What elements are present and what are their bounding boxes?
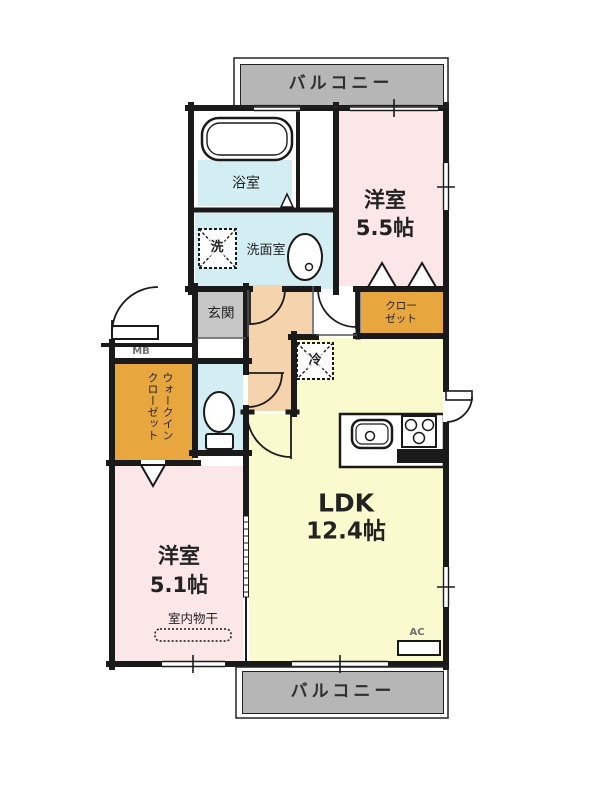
window-bedroom2-bottom bbox=[162, 655, 225, 673]
window-top-1 bbox=[254, 105, 300, 112]
ldk-name: LDK bbox=[318, 487, 374, 518]
window-ldk-right bbox=[437, 567, 455, 607]
washroom-label: 洗面室 bbox=[246, 243, 285, 259]
indoor-drying-icon bbox=[155, 629, 231, 641]
closet-folding-door-icon bbox=[368, 263, 436, 287]
walls-and-fixtures bbox=[0, 0, 607, 800]
washroom-door bbox=[250, 289, 285, 325]
closet-label: クローゼット bbox=[381, 300, 421, 326]
ac-label: AC bbox=[409, 627, 424, 640]
bath-label: 浴室 bbox=[232, 175, 260, 193]
bedroom1-name: 洋室 bbox=[364, 187, 406, 213]
ldk-door bbox=[247, 413, 291, 459]
fridge-label: 冷 bbox=[307, 353, 322, 369]
bathtub-icon bbox=[202, 118, 292, 160]
toilet-door bbox=[248, 373, 284, 407]
ac-unit-icon bbox=[398, 641, 440, 655]
bedroom2-name: 洋室 bbox=[158, 543, 200, 569]
sliding-door bbox=[243, 516, 249, 597]
mb-label: MB bbox=[132, 346, 150, 359]
bedroom2-size: 5.1帖 bbox=[150, 572, 208, 598]
wic-door-icon bbox=[141, 465, 165, 486]
wic-label: ウォークインクローゼット bbox=[139, 372, 175, 448]
window-top-2 bbox=[350, 99, 438, 117]
service-door bbox=[443, 391, 472, 422]
front-door bbox=[112, 287, 158, 345]
bedroom1-size: 5.5帖 bbox=[356, 215, 414, 241]
toilet-icon bbox=[204, 392, 234, 449]
ldk-size: 12.4帖 bbox=[306, 518, 386, 547]
balcony-bottom-label: バルコニー bbox=[291, 681, 396, 702]
balcony-top-label: バルコニー bbox=[289, 73, 394, 94]
counter-partition bbox=[397, 449, 446, 463]
entrance-label: 玄関 bbox=[208, 306, 235, 323]
bath-door-icon bbox=[281, 194, 293, 207]
floor-plan: バルコニー 浴室 洗 洗面室 洋室 5.5帖 クローゼット 玄関 MB ウォーク… bbox=[0, 0, 607, 800]
window-ldk-bottom bbox=[292, 655, 388, 673]
washbasin-icon bbox=[288, 234, 322, 280]
washer-label: 洗 bbox=[209, 240, 224, 256]
indoor-drying-label: 室内物干 bbox=[168, 611, 218, 627]
sink-icon bbox=[352, 420, 392, 448]
stove-icon bbox=[402, 416, 436, 447]
window-bedroom1-right bbox=[437, 163, 455, 210]
kitchen-counter bbox=[340, 414, 446, 467]
